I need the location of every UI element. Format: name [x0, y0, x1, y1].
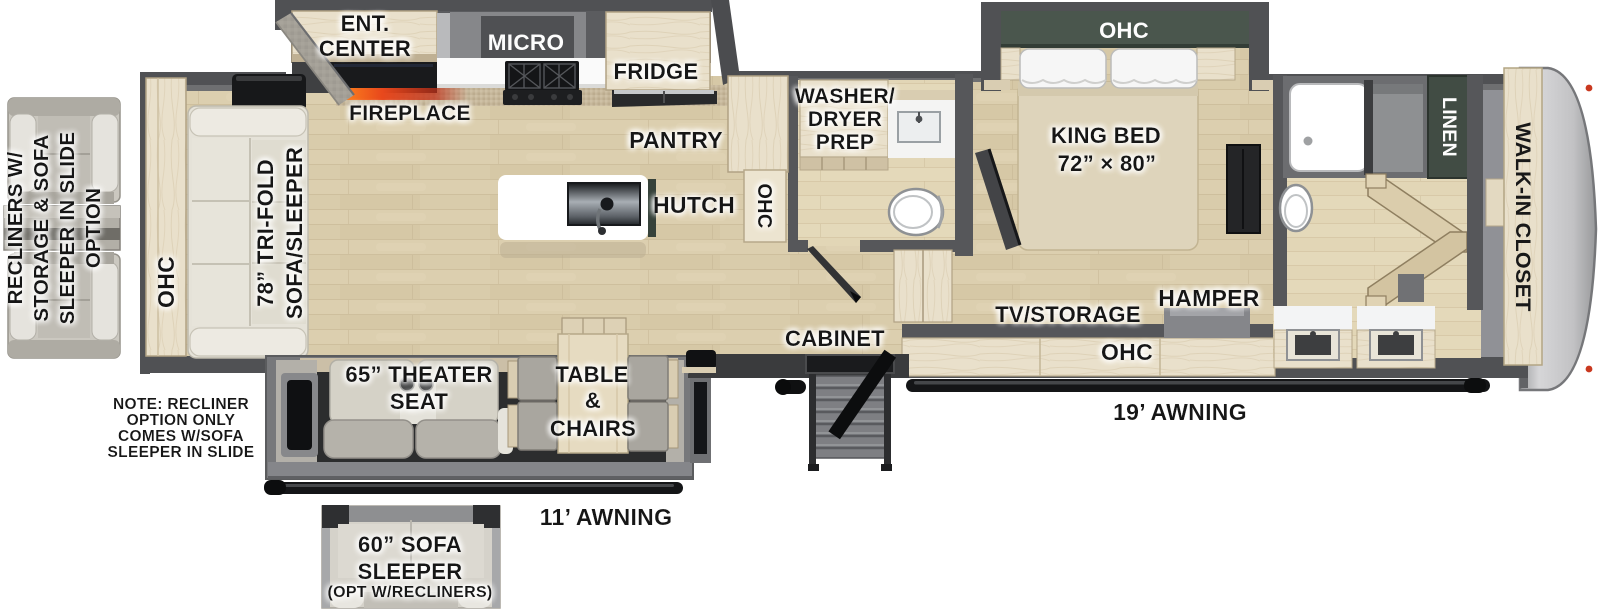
svg-text:19’ AWNING: 19’ AWNING	[1113, 399, 1247, 425]
svg-text:OHC: OHC	[1101, 339, 1153, 365]
svg-text:OHC: OHC	[153, 256, 179, 308]
svg-text:60” SOFA: 60” SOFA	[358, 532, 462, 557]
svg-text:CENTER: CENTER	[319, 36, 411, 61]
svg-text:11’ AWNING: 11’ AWNING	[540, 504, 673, 530]
svg-text:LINEN: LINEN	[1438, 97, 1460, 157]
svg-text:KING BED: KING BED	[1051, 123, 1161, 148]
svg-text:NOTE: RECLINER: NOTE: RECLINER	[113, 396, 249, 413]
svg-text:72” × 80”: 72” × 80”	[1058, 151, 1157, 176]
svg-text:HAMPER: HAMPER	[1158, 285, 1260, 311]
svg-text:WASHER/: WASHER/	[795, 85, 895, 108]
svg-text:OPTION ONLY: OPTION ONLY	[127, 412, 236, 429]
svg-text:OPTION: OPTION	[82, 188, 105, 268]
svg-text:COMES W/SOFA: COMES W/SOFA	[118, 428, 244, 445]
svg-text:SLEEPER IN SLIDE: SLEEPER IN SLIDE	[56, 132, 79, 325]
svg-text:(OPT W/RECLINERS): (OPT W/RECLINERS)	[327, 584, 492, 601]
svg-text:SLEEPER IN SLIDE: SLEEPER IN SLIDE	[108, 444, 255, 461]
svg-text:PANTRY: PANTRY	[629, 127, 723, 153]
svg-text:STORAGE & SOFA: STORAGE & SOFA	[30, 134, 53, 321]
svg-text:ENT.: ENT.	[341, 11, 390, 36]
svg-text:RECLINERS W/: RECLINERS W/	[4, 152, 27, 305]
svg-text:TABLE: TABLE	[555, 362, 628, 387]
svg-text:TV/STORAGE: TV/STORAGE	[995, 302, 1141, 327]
svg-text:CHAIRS: CHAIRS	[550, 416, 636, 441]
svg-text:&: &	[585, 388, 601, 413]
svg-text:DRYER: DRYER	[808, 108, 882, 131]
svg-text:HUTCH: HUTCH	[653, 192, 735, 218]
svg-text:SLEEPER: SLEEPER	[358, 559, 463, 584]
svg-text:WALK-IN CLOSET: WALK-IN CLOSET	[1511, 122, 1535, 311]
svg-text:FIREPLACE: FIREPLACE	[349, 102, 471, 125]
svg-text:65” THEATER: 65” THEATER	[345, 362, 492, 387]
svg-text:CABINET: CABINET	[785, 326, 885, 351]
svg-text:FRIDGE: FRIDGE	[614, 59, 699, 84]
svg-text:MICRO: MICRO	[488, 30, 565, 55]
svg-text:OHC: OHC	[753, 183, 775, 228]
svg-text:PREP: PREP	[816, 131, 874, 154]
svg-text:78” TRI-FOLD: 78” TRI-FOLD	[253, 159, 278, 307]
svg-text:SOFA/SLEEPER: SOFA/SLEEPER	[282, 147, 307, 319]
svg-text:OHC: OHC	[1099, 18, 1149, 43]
svg-text:SEAT: SEAT	[390, 389, 449, 414]
